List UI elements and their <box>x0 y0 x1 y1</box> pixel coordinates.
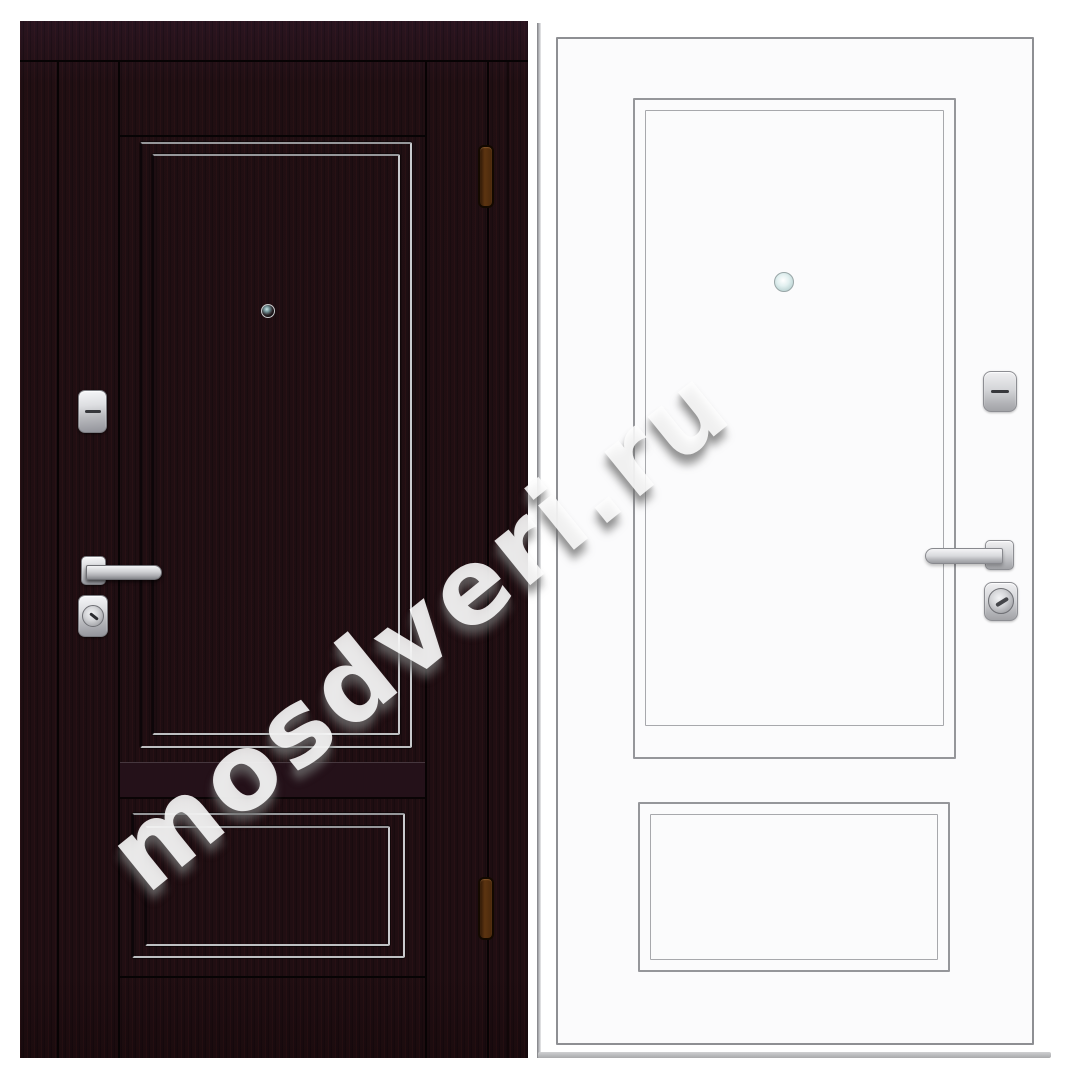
door-handle-icon <box>925 548 1003 564</box>
thumbturn-slot-icon <box>991 390 1009 393</box>
keyway-icon <box>995 597 1009 607</box>
deadbolt-escutcheon-icon <box>78 390 107 433</box>
keyway-icon <box>89 612 99 621</box>
deadbolt-keyhole-icon <box>85 410 101 413</box>
frame-left-joint <box>57 62 59 1058</box>
cylinder-icon <box>82 605 104 627</box>
hinge-top-icon <box>478 145 494 208</box>
cylinder-icon <box>988 588 1014 614</box>
leaf-left-stile-joint <box>118 62 120 1058</box>
cylinder-escutcheon-icon <box>78 595 108 637</box>
lower-panel-outline-inner <box>650 814 938 960</box>
peephole-icon <box>774 272 794 292</box>
cylinder-escutcheon-icon <box>984 582 1018 621</box>
thumbturn-escutcheon-icon <box>983 371 1017 412</box>
product-photo: mosdveri.ru <box>0 0 1073 1067</box>
hinge-bottom-icon <box>478 877 494 940</box>
frame-head-joint <box>20 60 528 62</box>
bottom-rail-joint <box>120 976 425 978</box>
door-handle-icon <box>86 565 162 580</box>
door-bottom-shadow <box>538 1052 1051 1058</box>
top-rail-joint <box>120 135 425 137</box>
peephole-icon <box>261 304 275 318</box>
